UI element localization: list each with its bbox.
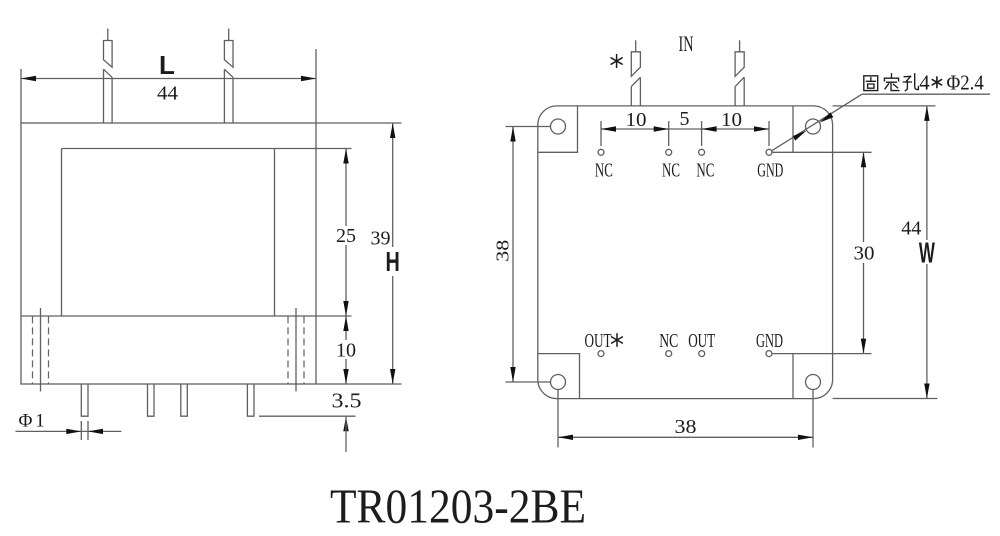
svg-text:L: L <box>159 50 175 80</box>
svg-text:NC: NC <box>696 160 714 182</box>
svg-text:25: 25 <box>336 225 356 247</box>
svg-text:38: 38 <box>675 416 697 438</box>
svg-text:10: 10 <box>626 109 647 131</box>
svg-text:W: W <box>919 238 935 270</box>
svg-text:NC: NC <box>662 160 680 182</box>
svg-text:IN: IN <box>679 31 694 56</box>
svg-text:10: 10 <box>336 340 356 362</box>
svg-text:GND: GND <box>757 160 783 182</box>
svg-text:H: H <box>385 246 399 277</box>
svg-text:5: 5 <box>680 108 690 130</box>
svg-text:NC: NC <box>659 330 678 352</box>
svg-text:44: 44 <box>157 83 178 105</box>
svg-text:Φ2.4: Φ2.4 <box>947 71 985 95</box>
svg-text:OUT: OUT <box>688 330 715 352</box>
svg-text:10: 10 <box>721 109 742 131</box>
svg-text:TR01203-2BE: TR01203-2BE <box>330 479 586 534</box>
svg-text:GND: GND <box>756 330 783 352</box>
svg-text:OUT: OUT <box>585 330 612 352</box>
svg-text:30: 30 <box>854 243 875 265</box>
svg-text:3.5: 3.5 <box>332 389 362 413</box>
svg-text:4: 4 <box>919 71 930 95</box>
svg-text:38: 38 <box>493 240 513 262</box>
svg-text:44: 44 <box>901 218 921 240</box>
svg-text:Φ: Φ <box>19 411 33 432</box>
svg-text:1: 1 <box>35 411 45 432</box>
svg-text:NC: NC <box>595 160 613 182</box>
